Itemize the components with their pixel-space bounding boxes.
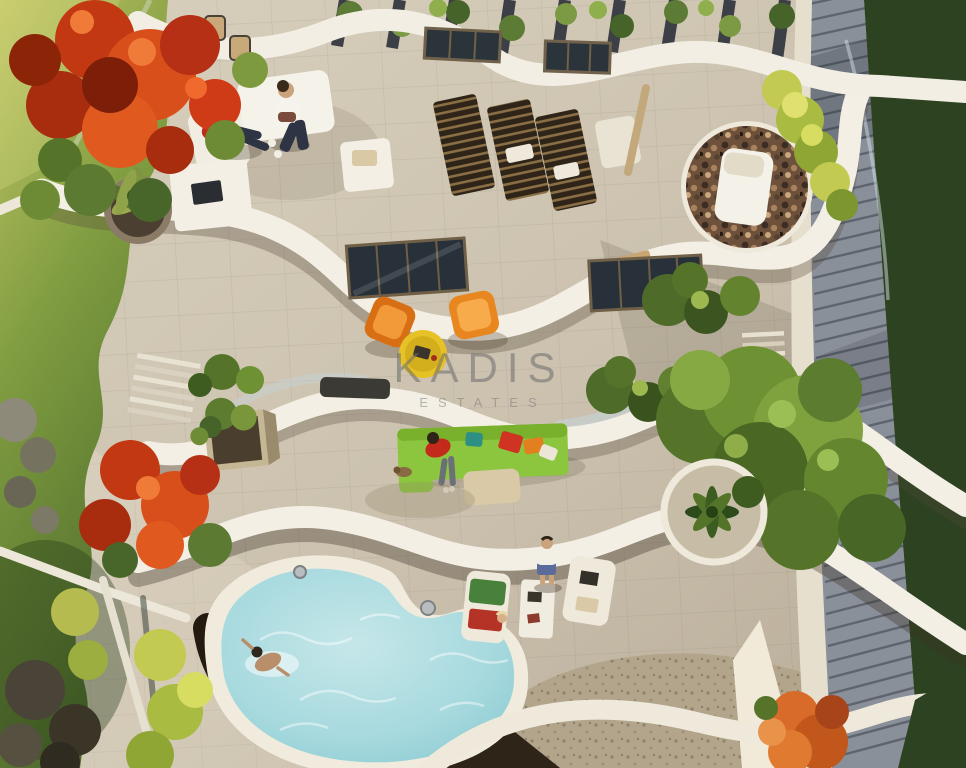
window-dark-2 <box>544 41 610 73</box>
lounger-left <box>460 570 511 644</box>
dark-bench <box>320 377 391 399</box>
tray <box>352 150 377 166</box>
yellow-side-table <box>399 330 447 378</box>
architectural-render: KADIS ESTATES <box>0 0 966 768</box>
window-dark-1 <box>424 28 500 62</box>
laptop <box>191 180 224 205</box>
child-figure <box>497 612 507 623</box>
pool-ladder <box>294 566 306 578</box>
pillow-teal <box>465 432 483 447</box>
held-object <box>278 112 296 122</box>
circular-planter <box>664 462 764 562</box>
pool-ladder <box>421 601 435 615</box>
round-rug <box>365 482 475 518</box>
scene-render <box>0 0 966 768</box>
